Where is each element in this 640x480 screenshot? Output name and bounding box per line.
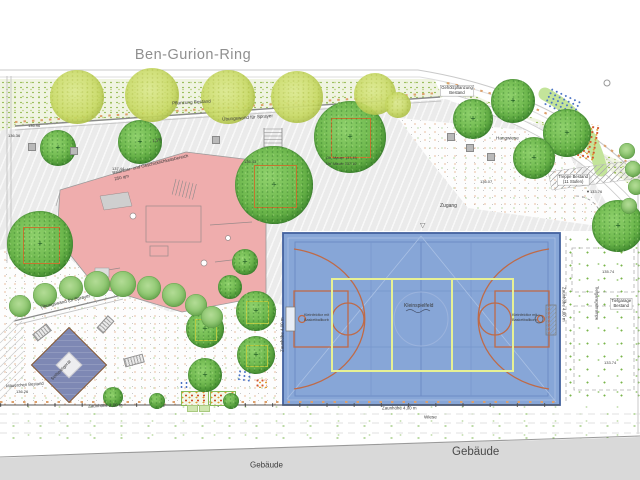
annotation-elev: 136.36 bbox=[8, 134, 20, 139]
annotation-fence-2m: Zaunhöhe 2,00 m bbox=[88, 403, 123, 409]
annotation-elev: 136.96 bbox=[28, 124, 40, 129]
annotation-elev: ▼133.76 bbox=[586, 190, 602, 195]
annotation-building-small: Gebäude bbox=[250, 461, 283, 471]
annotation-layer: Ben-Gurion-Ring Gebäude Pflanzung Bestan… bbox=[0, 0, 640, 480]
annotation-elev: 133.74 bbox=[604, 361, 616, 366]
annotation-fence-4m-left: Zaunhöhe 4,00 m bbox=[280, 318, 285, 352]
annotation-meadow: Wiese bbox=[424, 415, 437, 421]
label-box-stairs-existing: Treppe Bestand(11 Stufen) bbox=[557, 174, 589, 185]
annotation-goal-right-1: Kleinfeldtor mit bbox=[512, 313, 537, 318]
annotation-fence-4m-bottom: Zaunhöhe 4,00 m bbox=[382, 406, 416, 411]
annotation-entrance: Zugang bbox=[440, 203, 457, 209]
annotation-benchmark: ▽ bbox=[420, 222, 425, 230]
label-box-shrub-planting-existing: GehölzpflanzungBestand bbox=[440, 85, 474, 96]
annotation-slope-meadow: Hangwiese bbox=[496, 136, 519, 142]
annotation-fence-4m-right: Zaunhöhe 4,00 m bbox=[561, 287, 566, 321]
label-box-garage-existing: TiefgarageBestand bbox=[610, 298, 632, 309]
annotation-elev: 136.43 bbox=[244, 160, 256, 165]
annotation-slope-percent: 1,5% bbox=[152, 137, 162, 144]
annotation-wall-top-elev: Ob. Mauer 137.45 bbox=[326, 156, 357, 161]
annotation-planting-existing: Pflanzung Bestand bbox=[172, 99, 211, 107]
annotation-garage-ramp: Tiefgaragenrampe bbox=[594, 286, 599, 320]
annotation-wall-bottom-elev: Un. Mauer 137.10 bbox=[326, 162, 356, 167]
annotation-elev: 136.07 bbox=[480, 180, 492, 185]
annotation-elev: 136.26 bbox=[16, 390, 28, 395]
annotation-court-center: Kleinspielfeld bbox=[404, 303, 433, 309]
annotation-elev: 137.44 bbox=[112, 167, 124, 172]
annotation-rope-play: Seilspielgerät bbox=[50, 359, 72, 381]
annotation-sprayer-wall-2: Übungswand für Sprayer bbox=[40, 294, 91, 311]
site-plan: +++++++++++++++ Ben-Gurion-Ring Gebäude … bbox=[0, 0, 640, 480]
annotation-playground-title: Balancier- und Geschicklichkeitsbereich bbox=[112, 154, 189, 177]
street-name: Ben-Gurion-Ring bbox=[128, 47, 258, 63]
annotation-goal-right-2: Basketballkorb bbox=[512, 318, 537, 323]
annotation-elev: 135.74 bbox=[602, 270, 614, 275]
annotation-goal-left-1: Kleinfeldtor mit bbox=[304, 313, 329, 318]
annotation-sprayer-wall: Übungswand für Sprayer bbox=[222, 113, 273, 122]
building-name: Gebäude bbox=[452, 446, 499, 458]
annotation-wall-existing: Mäuerchen Bestand bbox=[6, 381, 44, 389]
annotation-goal-left-2: Basketballkorb bbox=[304, 318, 329, 323]
